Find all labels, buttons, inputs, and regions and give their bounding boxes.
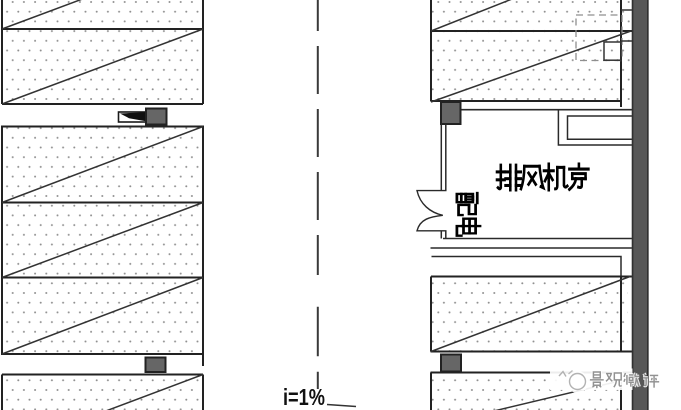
svg-text:i=1%: i=1% [283, 384, 325, 410]
